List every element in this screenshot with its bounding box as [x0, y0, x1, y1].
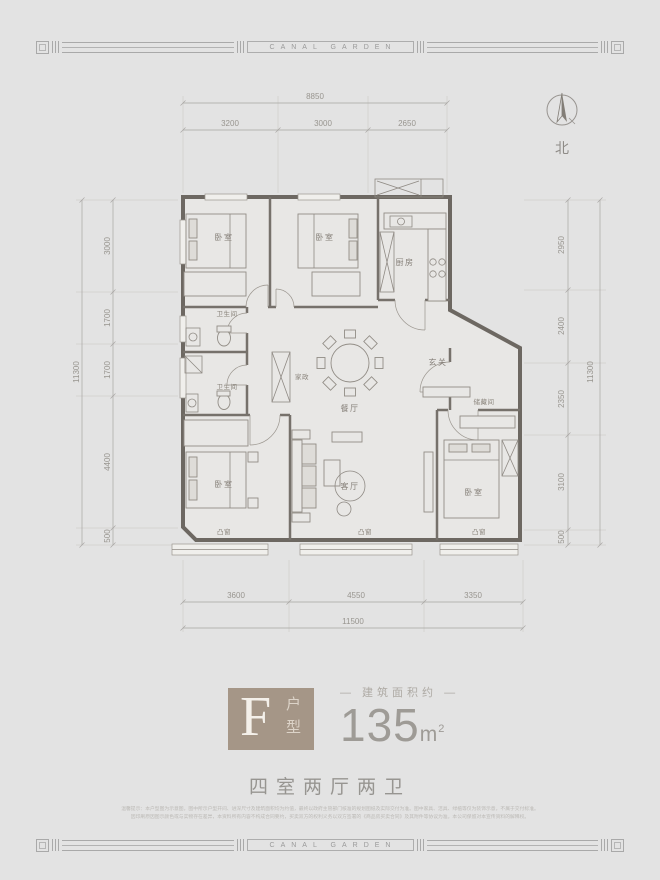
dim-right-seg: 500	[557, 530, 566, 544]
room-label: 家政	[295, 372, 309, 381]
disclaimer: 温馨提示：本户型图为示意图，图中所示户型开间、进深尺寸及建筑面积均为约值，最终以…	[74, 806, 586, 822]
disclaimer-line1: 温馨提示：本户型图为示意图，图中所示户型开间、进深尺寸及建筑面积均为约值，最终以…	[74, 806, 586, 814]
dim-left-seg: 500	[103, 529, 112, 543]
unit-letter: F	[240, 686, 271, 748]
area-number: 135	[340, 699, 420, 751]
dim-right-seg: 2400	[557, 317, 566, 335]
bay-window-label: 凸窗	[358, 527, 372, 536]
band-ticks-icon	[601, 41, 608, 53]
room-label: 客厅	[341, 481, 360, 491]
band-endcap-icon	[611, 839, 624, 852]
dim-bottom-seg: 4550	[347, 591, 365, 600]
room-label: 储藏间	[474, 397, 495, 406]
dim-bottom-seg: 3600	[227, 591, 245, 600]
band-ticks-icon	[417, 839, 424, 851]
band-rule	[427, 42, 599, 53]
brand-text: CANAL GARDEN	[247, 41, 414, 53]
dim-left-seg: 3000	[103, 237, 112, 255]
area-info: — 建筑面积约 — 135m2	[340, 684, 460, 748]
room-label: 卧室	[215, 479, 234, 489]
dim-left-seg: 4400	[103, 453, 112, 471]
band-ticks-icon	[237, 41, 244, 53]
area-unit-base: m	[420, 723, 439, 746]
band-endcap-icon	[36, 41, 49, 54]
dim-right-total: 11300	[586, 361, 595, 383]
rooms-summary: 四室两厅两卫	[0, 772, 660, 799]
dim-top-seg: 3000	[314, 119, 332, 128]
area-unit: m2	[420, 723, 446, 746]
disclaimer-line2: 因印刷原因图示颜色或与实物存在差异，本资料所有内容不构成合同要约，买卖双方的权利…	[74, 814, 586, 822]
dim-left-total: 11300	[72, 361, 81, 383]
dim-bottom-total: 11500	[342, 617, 364, 626]
bottom-border-band: CANAL GARDEN	[36, 836, 624, 854]
band-endcap-icon	[611, 41, 624, 54]
bed-icon	[444, 440, 499, 518]
brand-text: CANAL GARDEN	[247, 839, 414, 851]
dim-top-total: 8850	[306, 92, 324, 101]
dim-right-seg: 2950	[557, 236, 566, 254]
bay-window-label: 凸窗	[217, 527, 231, 536]
floorplan-page: CANAL GARDEN 北 8850 3200 3000 2	[0, 0, 660, 880]
dim-right-seg: 3100	[557, 473, 566, 491]
room-label: 厨房	[396, 257, 415, 267]
floor-plan: 8850 3200 3000 2650 11300 3000 1700 1700…	[60, 85, 620, 640]
room-label: 卧室	[465, 487, 484, 497]
room-label: 餐厅	[341, 404, 360, 413]
top-border-band: CANAL GARDEN	[36, 38, 624, 56]
dim-left-seg: 1700	[103, 361, 112, 379]
unit-type-badge: F 户型	[228, 688, 314, 750]
dim-bottom-seg: 3350	[464, 591, 482, 600]
bay-window-label: 凸窗	[472, 527, 486, 536]
band-ticks-icon	[52, 839, 59, 851]
dim-right-seg: 2350	[557, 390, 566, 408]
room-label: 卫生间	[217, 309, 238, 318]
band-ticks-icon	[417, 41, 424, 53]
band-ticks-icon	[601, 839, 608, 851]
dim-top-seg: 2650	[398, 119, 416, 128]
band-ticks-icon	[52, 41, 59, 53]
area-value: 135m2	[340, 702, 460, 748]
dim-left-seg: 1700	[103, 309, 112, 327]
band-rule	[62, 42, 234, 53]
dim-top-seg: 3200	[221, 119, 239, 128]
room-label: 卧室	[316, 232, 335, 242]
unit-type-label: 户型	[282, 696, 303, 742]
room-label: 卫生间	[217, 382, 238, 391]
area-prefix: — 建筑面积约 —	[340, 684, 460, 700]
room-label: 卧室	[215, 232, 234, 242]
band-rule	[62, 840, 234, 851]
area-unit-exponent: 2	[438, 723, 445, 735]
equipment-platform-icon	[375, 179, 443, 197]
room-label: 玄关	[429, 357, 448, 367]
band-rule	[427, 840, 599, 851]
band-endcap-icon	[36, 839, 49, 852]
band-ticks-icon	[237, 839, 244, 851]
